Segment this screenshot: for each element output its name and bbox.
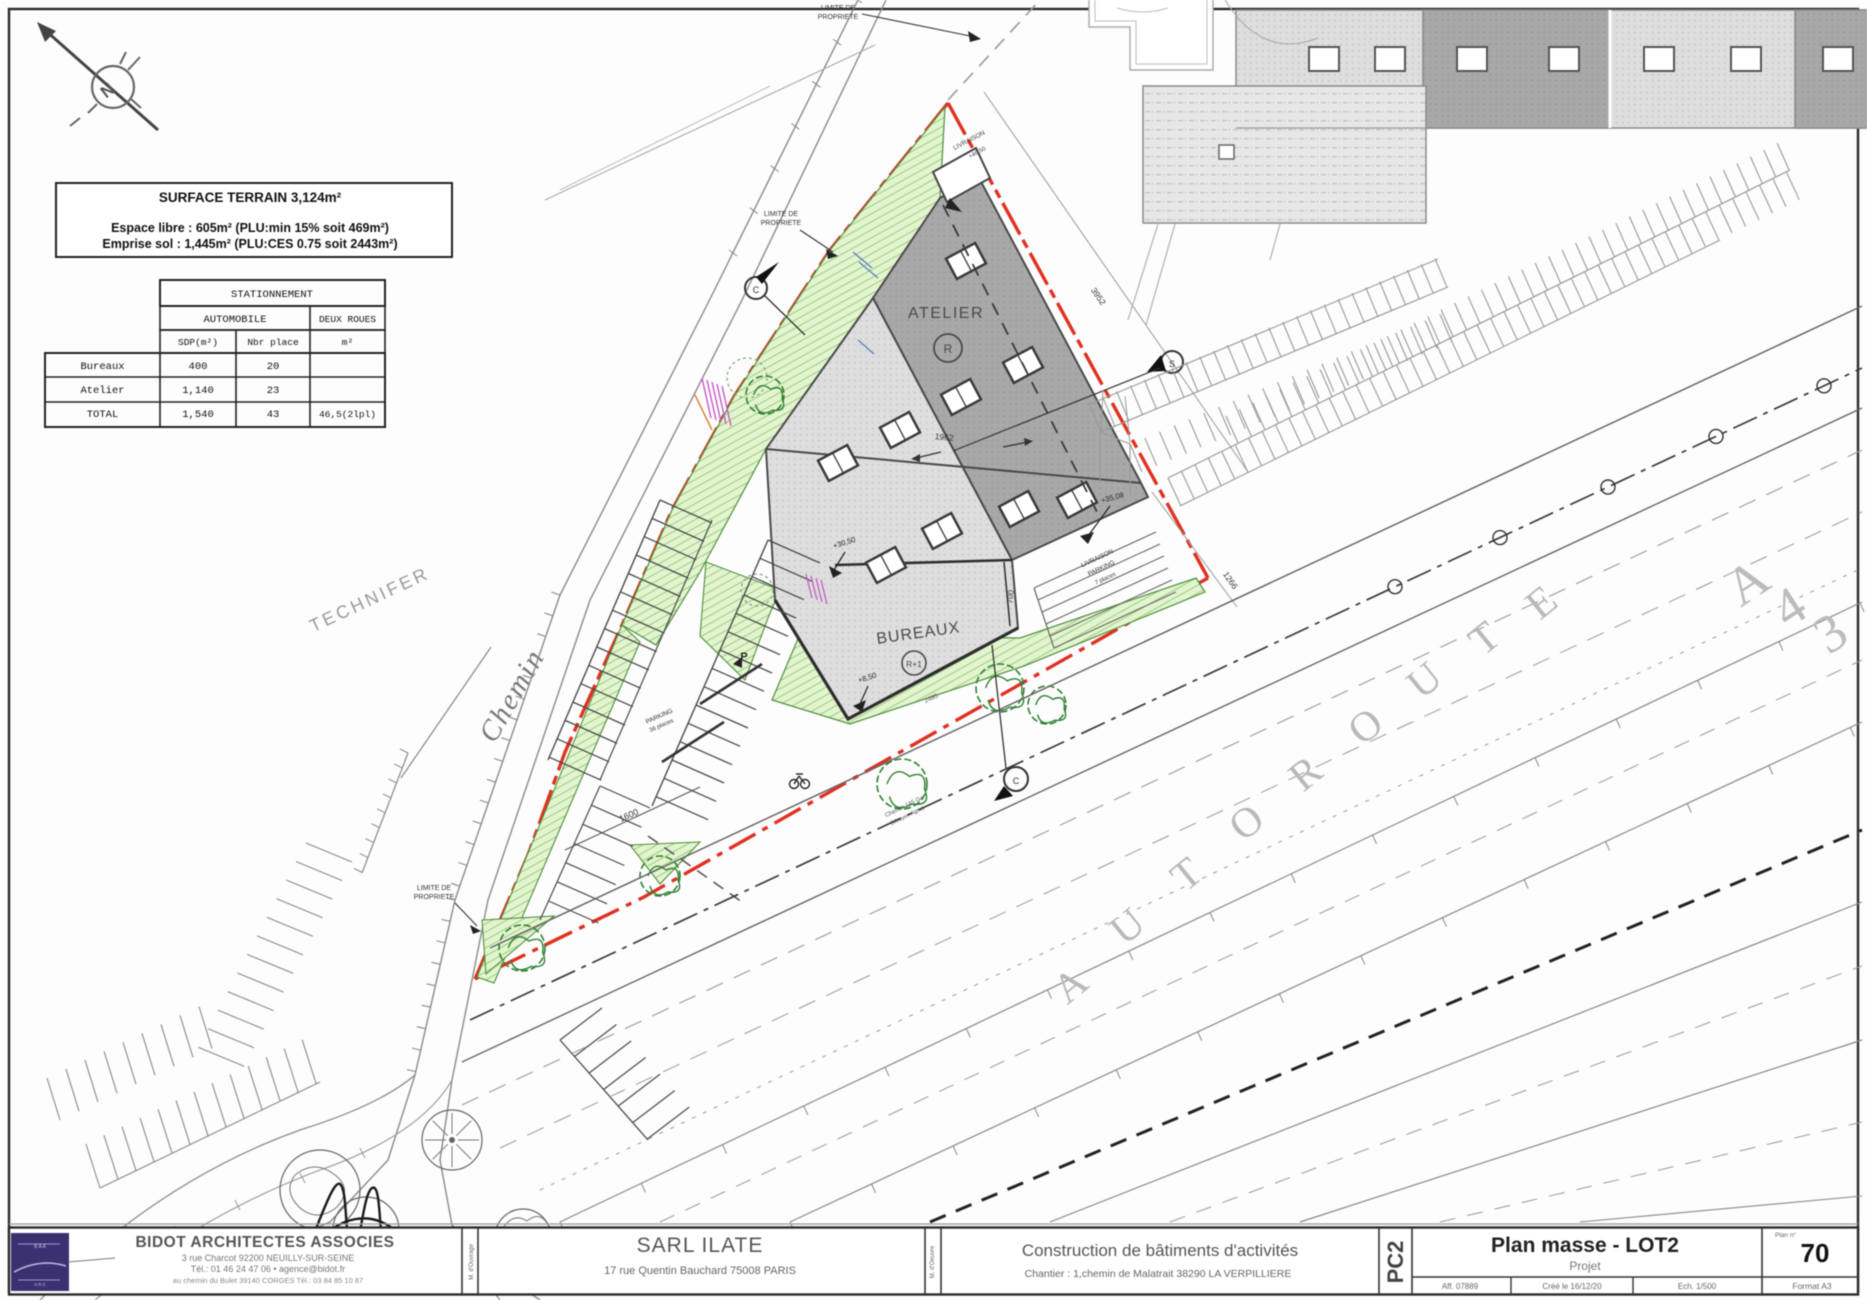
svg-text:1,140: 1,140 bbox=[182, 385, 214, 397]
svg-text:LIMITE DE: LIMITE DE bbox=[417, 885, 452, 892]
svg-text:700: 700 bbox=[1005, 589, 1015, 604]
svg-text:m²: m² bbox=[342, 337, 353, 348]
svg-text:M. d'Oeuvre: M. d'Oeuvre bbox=[930, 1245, 936, 1278]
svg-text:Emprise sol : 1,445m² (PLU:CES: Emprise sol : 1,445m² (PLU:CES 0.75 soit… bbox=[102, 237, 397, 251]
svg-text:43: 43 bbox=[267, 409, 280, 421]
svg-text:PROPRIETE: PROPRIETE bbox=[761, 220, 802, 227]
svg-text:C: C bbox=[1013, 776, 1020, 786]
svg-text:B A A: B A A bbox=[34, 1244, 47, 1250]
svg-text:S: S bbox=[1169, 359, 1175, 369]
svg-text:46,5(2lpl): 46,5(2lpl) bbox=[319, 409, 376, 420]
svg-text:SARL ILATE: SARL ILATE bbox=[637, 1234, 764, 1257]
svg-text:1,540: 1,540 bbox=[182, 409, 214, 421]
svg-text:Nbr place: Nbr place bbox=[247, 337, 299, 348]
svg-text:R: R bbox=[944, 342, 953, 356]
svg-text:Bureaux: Bureaux bbox=[80, 361, 124, 373]
svg-text:PC2: PC2 bbox=[1383, 1241, 1408, 1284]
svg-text:Projet: Projet bbox=[1569, 1259, 1601, 1273]
svg-text:R+1: R+1 bbox=[906, 659, 922, 669]
svg-text:ATELIER: ATELIER bbox=[908, 305, 984, 322]
svg-text:LIMITE DE: LIMITE DE bbox=[764, 211, 799, 218]
svg-text:A R C: A R C bbox=[34, 1282, 47, 1287]
svg-text:Chantier : 1,chemin de Malatr: Chantier : 1,chemin de Malatrait 38290 L… bbox=[1025, 1268, 1292, 1280]
svg-text:23: 23 bbox=[267, 385, 280, 397]
svg-text:Plan n°: Plan n° bbox=[1775, 1231, 1796, 1239]
svg-text:400: 400 bbox=[189, 361, 208, 373]
svg-text:PROPRIETE: PROPRIETE bbox=[818, 14, 859, 21]
svg-text:Aff. 07889: Aff. 07889 bbox=[1442, 1282, 1479, 1291]
svg-text:DEUX ROUES: DEUX ROUES bbox=[319, 314, 376, 325]
svg-text:20: 20 bbox=[267, 361, 280, 373]
svg-text:Atelier: Atelier bbox=[80, 385, 124, 397]
svg-text:Format A3: Format A3 bbox=[1792, 1281, 1831, 1291]
svg-text:LIMITE DE: LIMITE DE bbox=[821, 5, 856, 12]
svg-text:BIDOT ARCHITECTES ASSOCIES: BIDOT ARCHITECTES ASSOCIES bbox=[135, 1234, 394, 1251]
svg-text:Plan masse - LOT2: Plan masse - LOT2 bbox=[1491, 1234, 1679, 1257]
svg-text:17 rue Quentin Bauchard 7500: 17 rue Quentin Bauchard 75008 PARIS bbox=[604, 1265, 796, 1277]
svg-text:TOTAL: TOTAL bbox=[87, 409, 119, 421]
svg-text:AUTOMOBILE: AUTOMOBILE bbox=[203, 314, 266, 326]
svg-text:au chemin du Bulet 39140 CORGE: au chemin du Bulet 39140 CORGES Tél.: 03… bbox=[173, 1276, 363, 1285]
svg-text:Espace libre : 605m² (PLU:min: Espace libre : 605m² (PLU:min 15% soit 4… bbox=[111, 221, 389, 235]
svg-text:SURFACE TERRAIN 3,124m²: SURFACE TERRAIN 3,124m² bbox=[159, 190, 342, 205]
svg-text:M. d'Ouvrage: M. d'Ouvrage bbox=[469, 1243, 475, 1279]
svg-text:PROPRIETE: PROPRIETE bbox=[414, 894, 455, 901]
svg-text:1962: 1962 bbox=[934, 431, 954, 443]
svg-text:Construction de bâtiments d'ac: Construction de bâtiments d'activités bbox=[1022, 1241, 1298, 1260]
svg-text:C: C bbox=[753, 285, 760, 295]
svg-text:SDP(m²): SDP(m²) bbox=[178, 337, 218, 348]
svg-text:Ech. 1/500: Ech. 1/500 bbox=[1678, 1282, 1717, 1291]
svg-text:Créé le 16/12/20: Créé le 16/12/20 bbox=[1542, 1282, 1602, 1291]
svg-text:70: 70 bbox=[1801, 1238, 1830, 1268]
svg-text:Tél.: 01 46 24 47 06 • agence: Tél.: 01 46 24 47 06 • agence@bidot.fr bbox=[191, 1264, 345, 1274]
svg-text:STATIONNEMENT: STATIONNEMENT bbox=[231, 289, 313, 301]
svg-text:3 rue Charcot 92200 NEUILLY-SU: 3 rue Charcot 92200 NEUILLY-SUR-SEINE bbox=[182, 1253, 355, 1263]
